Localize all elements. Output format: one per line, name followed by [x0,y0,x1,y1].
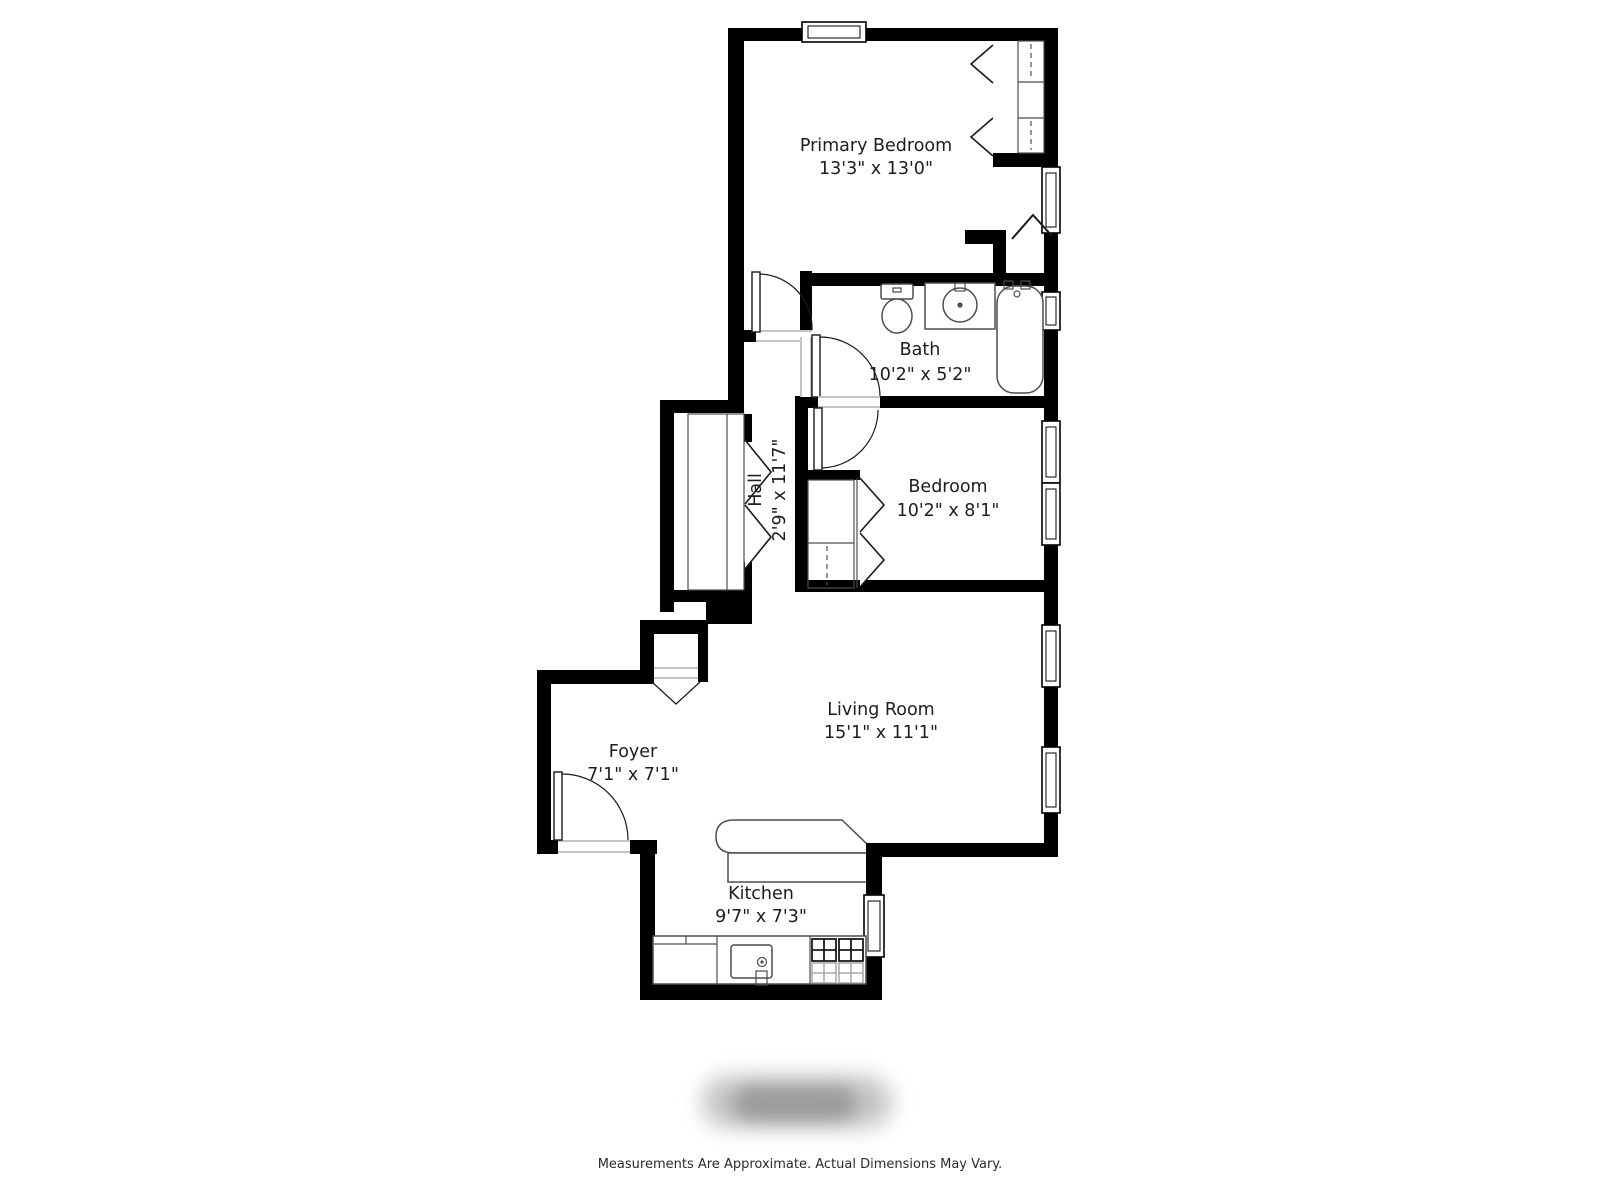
wall-segment [537,840,558,854]
kitchen-peninsula-counter [716,820,869,882]
window [1042,292,1060,330]
room-dims-bedroom: 10'2" x 8'1" [897,501,1000,521]
wall-segment [795,580,1058,592]
bedroom-closet [808,478,884,588]
room-label-bath: Bath [900,340,941,360]
wall-segment [880,396,1044,408]
wall-segment [640,620,654,684]
wall-segment [866,957,882,1000]
room-label-bedroom: Bedroom [908,477,987,497]
room-dims-bath: 10'2" x 5'2" [869,365,972,385]
floor-plan-page: Primary Bedroom 13'3" x 13'0" Bath 10'2"… [0,0,1600,1200]
wall-segment [1044,233,1058,292]
wall-segment [866,843,1058,857]
room-dims-living-room: 15'1" x 11'1" [824,723,938,743]
wall-segment [537,670,551,854]
room-label-foyer: Foyer [609,742,658,762]
bifold-door [860,533,884,587]
bifold-door [971,45,993,83]
room-label-primary-bedroom: Primary Bedroom [800,136,952,156]
wall-segment [728,28,744,413]
window [1042,167,1060,233]
room-dims-foyer: 7'1" x 7'1" [587,765,679,785]
room-label-hall: Hall [746,473,766,507]
bathtub [997,281,1043,393]
toilet [881,284,913,333]
counter-base [728,853,868,882]
room-label-living-room: Living Room [827,700,934,720]
wall-segment [1044,28,1058,167]
blurred-watermark-logo [702,1072,892,1132]
wall-segment [537,670,641,684]
sink-vanity [925,283,995,329]
disclaimer-text: Measurements Are Approximate. Actual Dim… [0,1157,1600,1172]
bifold-door [745,505,771,569]
wall-segment [698,630,708,682]
room-label-kitchen: Kitchen [728,884,794,904]
foyer-closet-door [652,666,700,704]
wall-segment [795,396,808,592]
wall-segment [640,984,882,1000]
wall-segment [706,590,752,624]
window [1042,747,1060,813]
primary-bedroom-closet [971,41,1044,156]
wall-segment [866,28,1058,41]
wall-segment [800,273,1044,286]
room-dims-primary-bedroom: 13'3" x 13'0" [819,159,933,179]
window [864,895,884,957]
wall-segment [1044,687,1058,747]
bifold-door [860,478,884,532]
wall-segment [744,414,752,442]
window [1042,483,1060,545]
watermark-blob [734,1086,856,1120]
bedroom-door [814,396,880,470]
room-labels: Primary Bedroom 13'3" x 13'0" Bath 10'2"… [587,136,999,927]
wall-segment [993,153,1058,167]
wall-segment [1044,330,1058,421]
room-dims-kitchen: 9'7" x 7'3" [715,907,807,927]
wall-segment [993,230,1006,275]
counter-top [716,820,869,853]
window [1042,421,1060,483]
window [1042,625,1060,687]
room-dims-hall: 2'9" x 11'7" [770,439,790,542]
kitchen-fixtures [653,936,866,985]
window [802,22,866,42]
wall-segment [808,470,860,480]
floor-plan-svg: Primary Bedroom 13'3" x 13'0" Bath 10'2"… [0,0,1600,1200]
wall-segment [660,400,674,612]
bifold-door [971,118,993,156]
